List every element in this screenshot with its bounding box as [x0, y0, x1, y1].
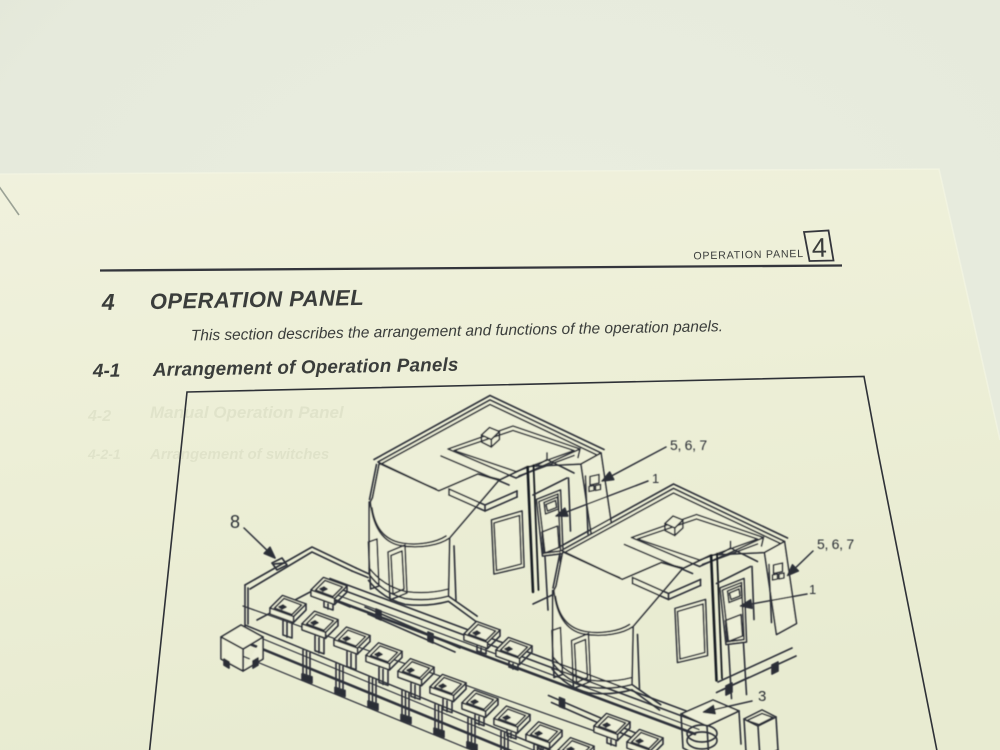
svg-text:5, 6, 7: 5, 6, 7	[817, 536, 854, 552]
svg-text:OPERATION PANEL: OPERATION PANEL	[693, 248, 804, 262]
svg-text:4-2-1: 4-2-1	[87, 446, 121, 462]
svg-text:4: 4	[811, 233, 827, 263]
svg-text:4-1: 4-1	[92, 361, 121, 382]
svg-text:5, 6, 7: 5, 6, 7	[670, 437, 707, 453]
svg-text:3: 3	[758, 688, 766, 705]
svg-text:OPERATION PANEL: OPERATION PANEL	[150, 285, 365, 314]
svg-text:Arrangement of switches: Arrangement of switches	[149, 446, 329, 463]
svg-text:4: 4	[101, 289, 115, 315]
svg-text:Manual Operation Panel: Manual Operation Panel	[150, 403, 345, 422]
svg-text:1: 1	[652, 471, 659, 486]
svg-text:1: 1	[809, 582, 816, 597]
svg-text:8: 8	[230, 512, 240, 532]
svg-text:4-2: 4-2	[87, 408, 111, 425]
